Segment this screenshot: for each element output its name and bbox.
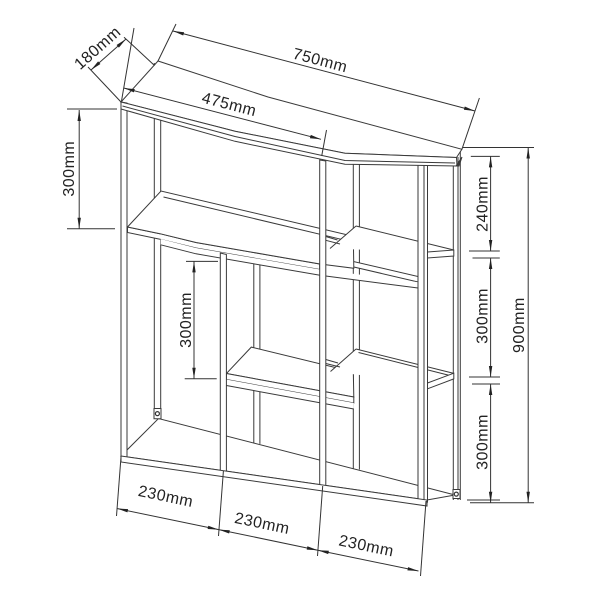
svg-text:300mm: 300mm bbox=[474, 414, 491, 470]
svg-text:300mm: 300mm bbox=[61, 141, 78, 197]
svg-text:300mm: 300mm bbox=[474, 288, 491, 344]
svg-text:900mm: 900mm bbox=[511, 297, 528, 353]
svg-text:240mm: 240mm bbox=[474, 176, 491, 232]
svg-text:300mm: 300mm bbox=[178, 292, 195, 348]
